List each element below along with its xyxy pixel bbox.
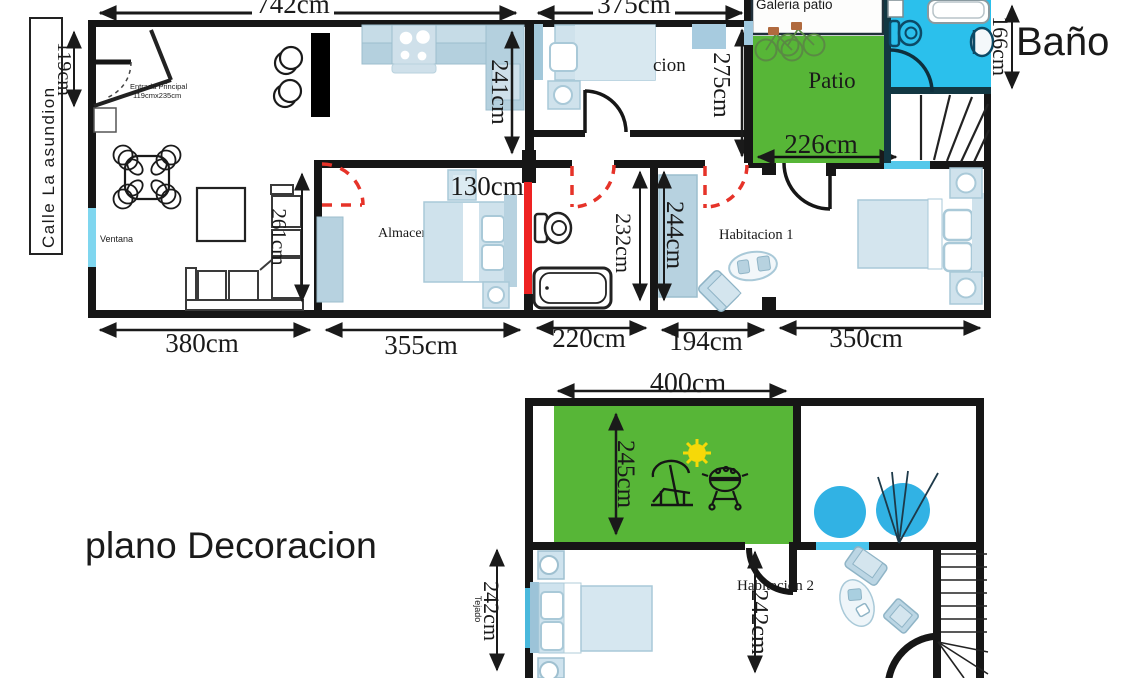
svg-text:242cm: 242cm xyxy=(746,589,772,655)
svg-text:275cm: 275cm xyxy=(708,52,734,118)
svg-text:220cm: 220cm xyxy=(552,323,626,353)
svg-text:119cm: 119cm xyxy=(53,42,75,96)
svg-text:119cmx235cm: 119cmx235cm xyxy=(133,91,181,100)
svg-text:350cm: 350cm xyxy=(829,323,903,353)
svg-text:Entrada Principal: Entrada Principal xyxy=(130,82,187,91)
svg-text:plano Decoracion: plano Decoracion xyxy=(85,524,377,566)
svg-text:400cm: 400cm xyxy=(650,368,726,399)
svg-text:245cm: 245cm xyxy=(612,440,639,509)
svg-text:Patio: Patio xyxy=(808,68,855,93)
svg-text:355cm: 355cm xyxy=(384,330,458,360)
svg-text:Habitacion 1: Habitacion 1 xyxy=(719,227,794,243)
svg-text:Galeria patio: Galeria patio xyxy=(756,0,833,12)
svg-text:375cm: 375cm xyxy=(597,0,671,19)
svg-text:166cm: 166cm xyxy=(988,16,1013,76)
svg-text:742cm: 742cm xyxy=(256,0,330,19)
svg-text:261cm: 261cm xyxy=(267,208,291,265)
svg-text:cion: cion xyxy=(653,55,686,76)
svg-text:Ventana: Ventana xyxy=(100,234,133,244)
svg-text:Almacen: Almacen xyxy=(378,226,429,241)
svg-text:226cm: 226cm xyxy=(784,129,858,159)
svg-text:Calle La asundion: Calle La asundion xyxy=(39,86,58,248)
svg-text:194cm: 194cm xyxy=(669,326,743,356)
svg-text:244cm: 244cm xyxy=(661,201,688,270)
svg-text:Baño: Baño xyxy=(1016,20,1109,64)
svg-text:130cm: 130cm xyxy=(450,171,524,201)
svg-text:241cm: 241cm xyxy=(486,59,512,125)
svg-text:380cm: 380cm xyxy=(165,328,239,358)
svg-text:Tejado: Tejado xyxy=(473,596,483,623)
svg-text:232cm: 232cm xyxy=(611,213,636,273)
